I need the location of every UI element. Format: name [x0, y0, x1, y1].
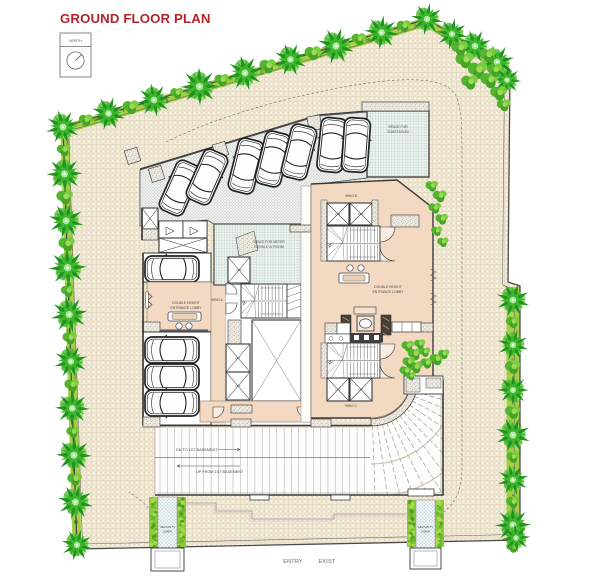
- svg-text:NORTH: NORTH: [69, 39, 82, 43]
- svg-text:LIFT: LIFT: [358, 212, 364, 216]
- svg-text:WING B: WING B: [345, 194, 357, 198]
- svg-text:WING C: WING C: [345, 404, 358, 408]
- svg-text:DOUBLE HEIGHT: DOUBLE HEIGHT: [172, 301, 200, 305]
- svg-text:DN TO 1ST BASEMENT: DN TO 1ST BASEMENT: [176, 448, 218, 452]
- svg-text:ROOM & LV ROOM: ROOM & LV ROOM: [254, 245, 284, 249]
- svg-text:ENTRANCE LOBBY: ENTRANCE LOBBY: [373, 290, 405, 294]
- svg-text:SPACE FOR METER: SPACE FOR METER: [253, 240, 285, 244]
- svg-text:LIFT: LIFT: [358, 388, 364, 392]
- svg-text:LIFT: LIFT: [235, 356, 241, 360]
- svg-text:ENTRANCE LOBBY: ENTRANCE LOBBY: [171, 306, 203, 310]
- svg-text:EXIST: EXIST: [319, 559, 336, 565]
- svg-text:CABIN: CABIN: [421, 530, 430, 534]
- svg-text:SPACE FOR: SPACE FOR: [388, 125, 408, 129]
- svg-text:ENTRY: ENTRY: [283, 559, 303, 565]
- svg-text:UP FROM 1ST BASEMENT: UP FROM 1ST BASEMENT: [196, 470, 244, 474]
- svg-text:CABIN: CABIN: [163, 530, 172, 534]
- svg-text:GROUND FLOOR PLAN: GROUND FLOOR PLAN: [60, 11, 211, 26]
- svg-text:SUBSTATION: SUBSTATION: [387, 130, 409, 134]
- svg-text:LIFT: LIFT: [235, 384, 241, 388]
- svg-text:LIFT: LIFT: [335, 388, 341, 392]
- svg-text:SECURITY: SECURITY: [418, 525, 433, 529]
- svg-text:LIFT: LIFT: [236, 268, 242, 272]
- svg-text:DOUBLE HEIGHT: DOUBLE HEIGHT: [374, 285, 402, 289]
- svg-text:WING A: WING A: [211, 298, 223, 302]
- svg-text:LIFT: LIFT: [335, 212, 341, 216]
- svg-text:SECURITY: SECURITY: [160, 525, 175, 529]
